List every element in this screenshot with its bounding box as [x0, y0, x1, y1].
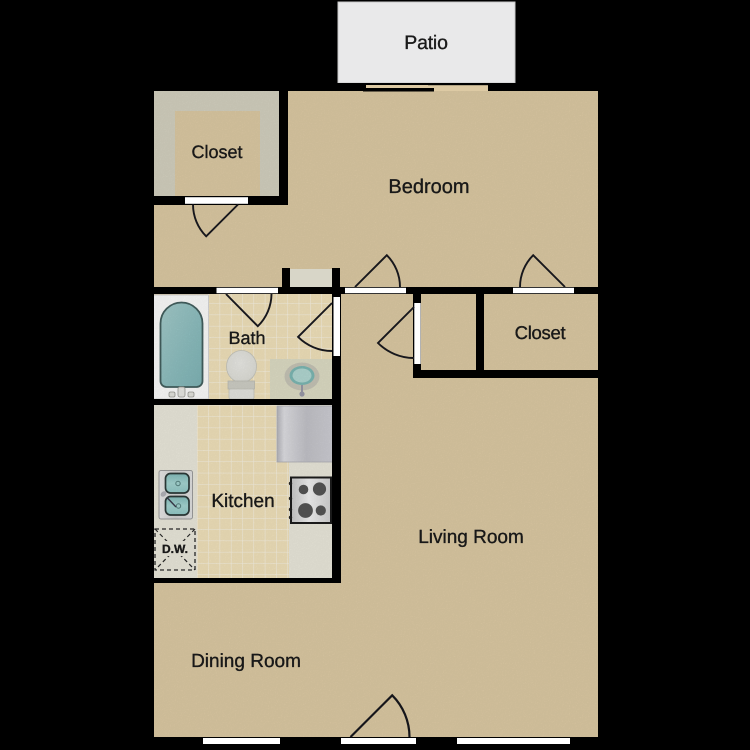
svg-text:Patio: Patio: [404, 32, 448, 54]
